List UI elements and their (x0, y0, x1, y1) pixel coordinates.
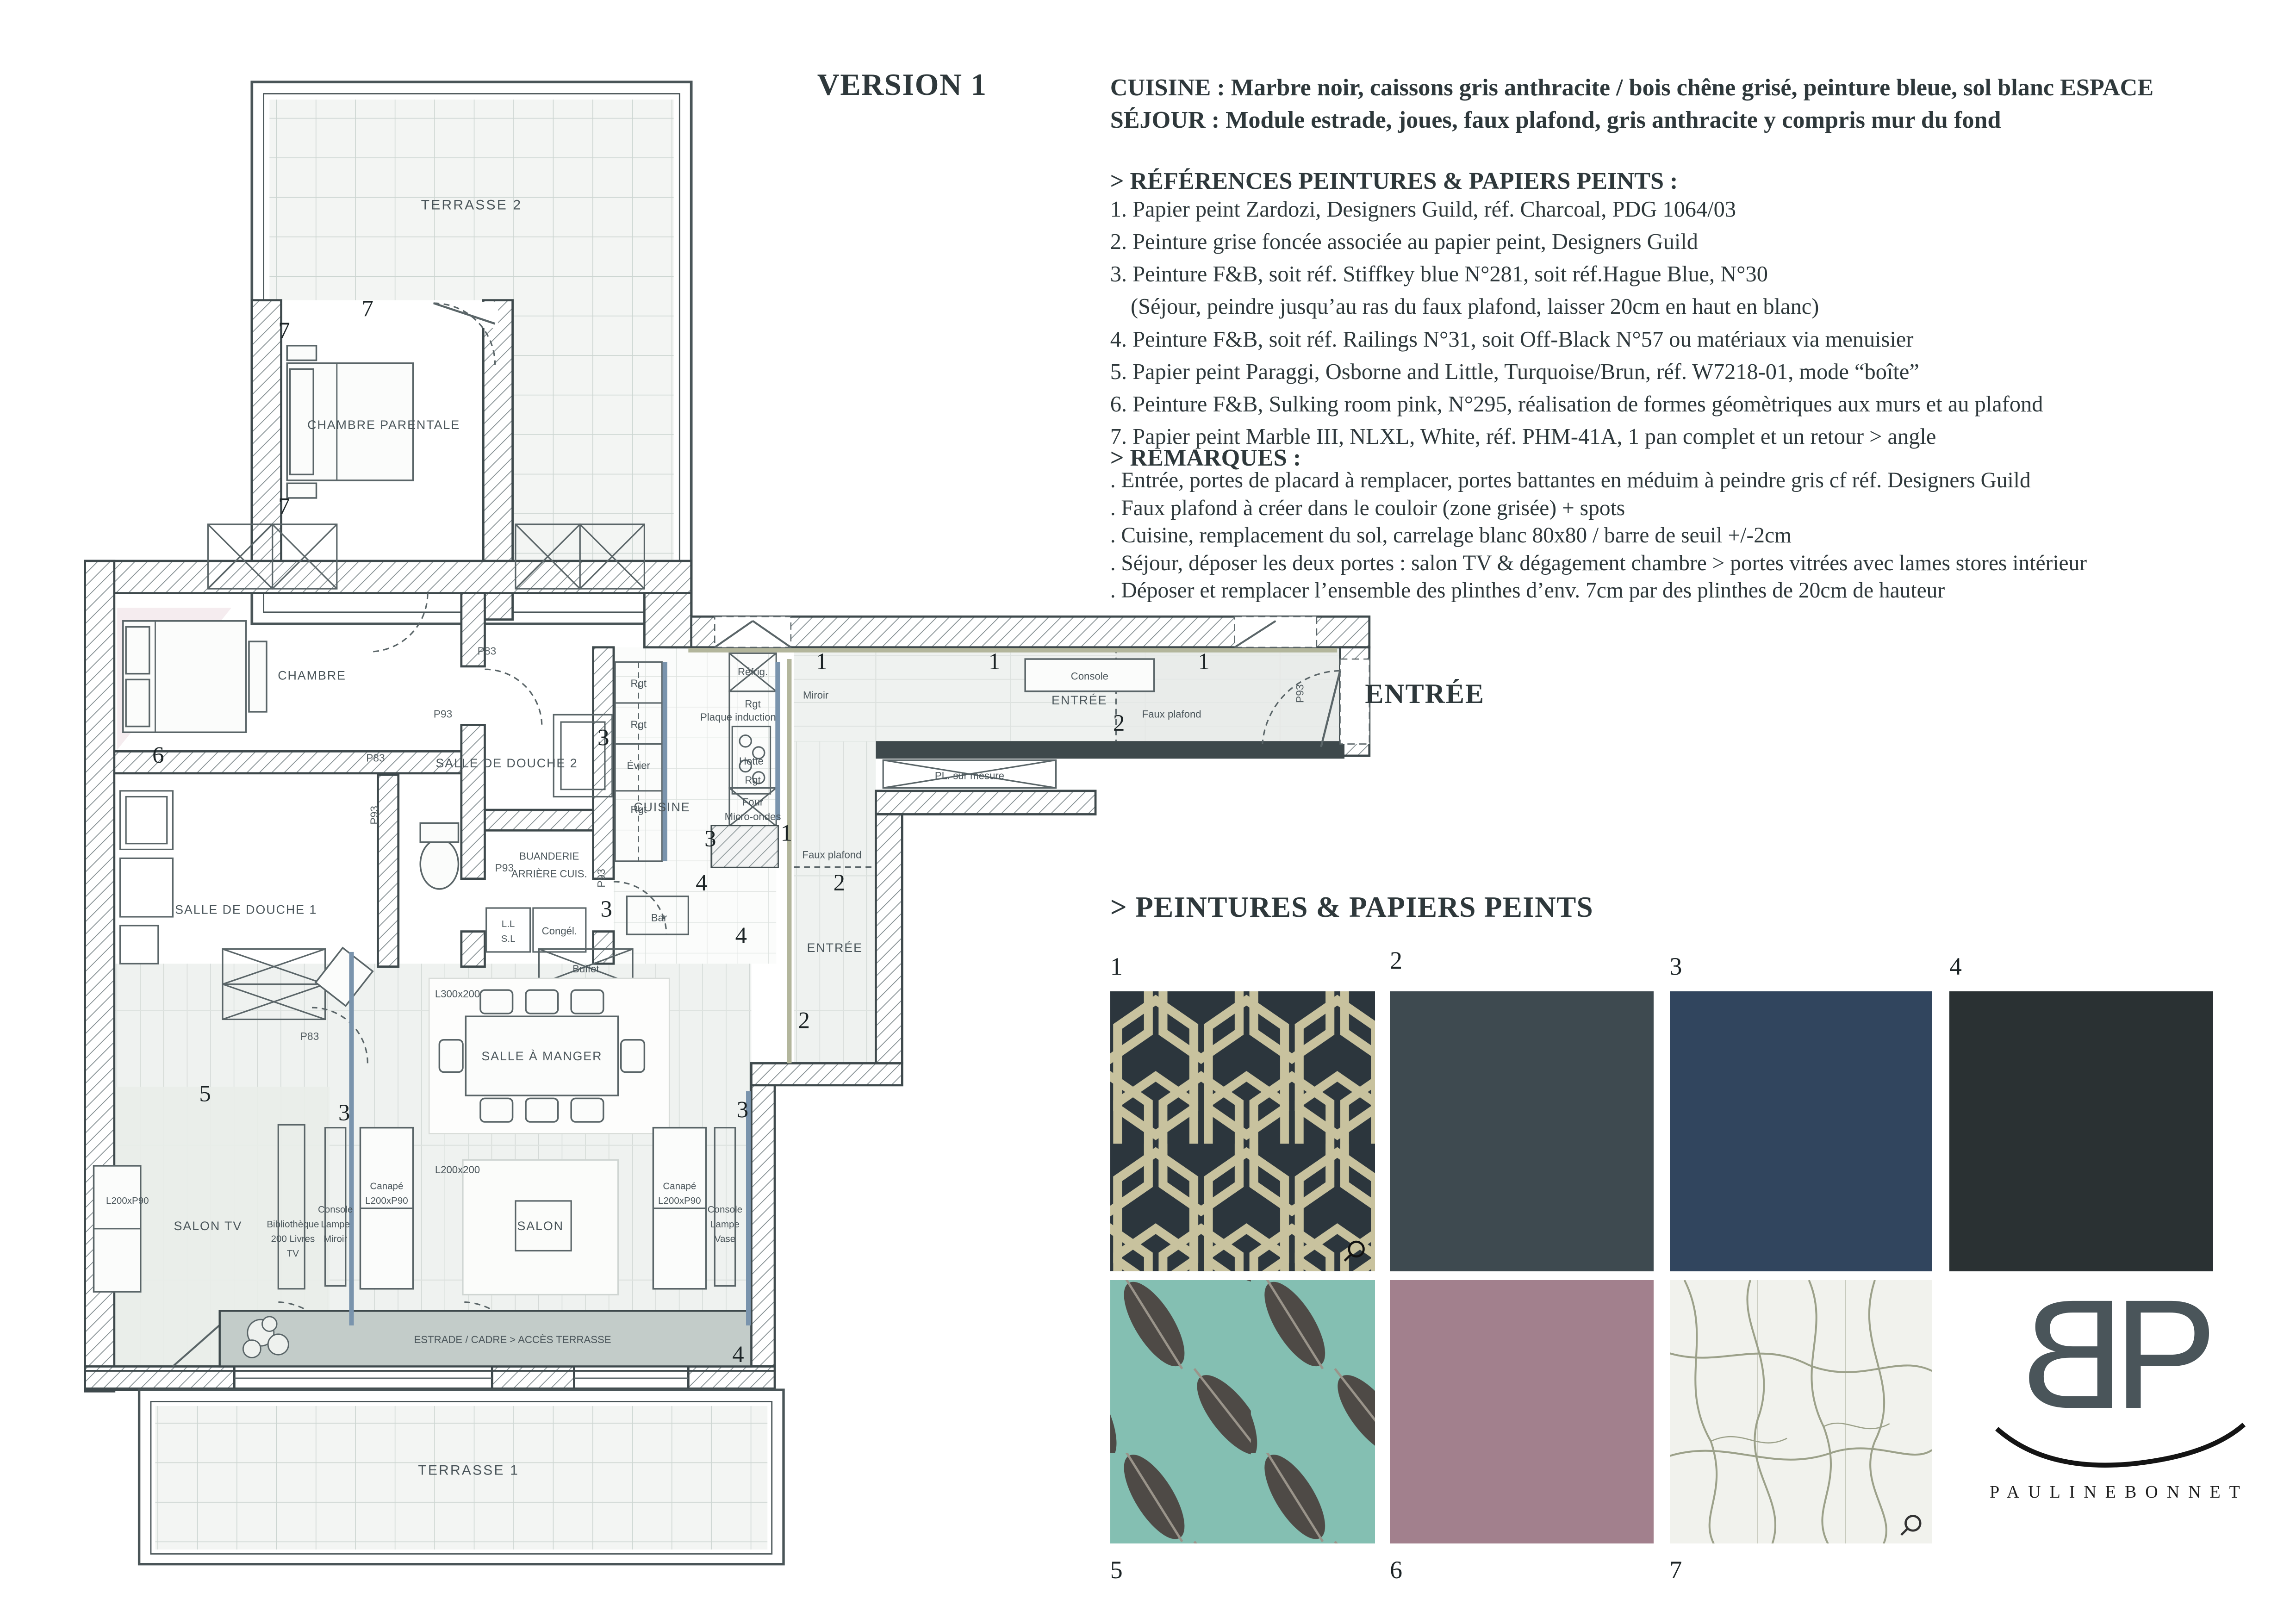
label-buffet: Buffet (572, 963, 599, 975)
label-congel: Congél. (542, 925, 577, 937)
header-line-1: CUISINE : Marbre noir, caissons gris ant… (1110, 72, 2238, 104)
label-l200xp90: L200xP90 (106, 1195, 149, 1206)
label-console-strip-2: Console (708, 1204, 742, 1215)
room-label-chambre-parentale: CHAMBRE PARENTALE (307, 418, 460, 432)
swatch-paint-4 (1949, 991, 2213, 1271)
swatch-paint-6 (1390, 1280, 1654, 1544)
label-plaque-induction: Plaque induction (700, 711, 776, 723)
marker-3: 3 (737, 1097, 748, 1123)
label-miroir-strip: Miroir (324, 1233, 348, 1244)
remarques-list: . Entrée, portes de placard à remplacer,… (1110, 467, 2223, 605)
label-console: Console (1071, 670, 1108, 682)
tag-p93: P93 (368, 806, 380, 825)
bp-monogram-icon: B P (1980, 1286, 2258, 1473)
marker-7: 7 (278, 493, 290, 519)
marker-7: 7 (278, 317, 290, 343)
reference-item: 2. Peinture grise foncée associée au pap… (1110, 226, 2223, 258)
swatch-number-1: 1 (1110, 952, 1123, 981)
reference-item: 4. Peinture F&B, soit réf. Railings N°31… (1110, 324, 2223, 356)
tag-p83: P83 (300, 1030, 319, 1042)
marker-2: 2 (1113, 710, 1125, 736)
reference-item: 5. Papier peint Paraggi, Osborne and Lit… (1110, 356, 2223, 388)
label-l200xp90: L200xP90 (365, 1195, 408, 1206)
swatch-number-7: 7 (1670, 1556, 1682, 1584)
tag-p83: P83 (478, 645, 497, 657)
tag-p93: P93 (495, 862, 514, 874)
marker-4: 4 (732, 1341, 744, 1367)
room-label-terrasse2: TERRASSE 2 (421, 198, 523, 213)
label-vase: Vase (715, 1233, 735, 1244)
reference-item: 3. Peinture F&B, soit réf. Stiffkey blue… (1110, 258, 2223, 291)
swatch-paint-3 (1670, 991, 1932, 1271)
references-title: > RÉFÉRENCES PEINTURES & PAPIERS PEINTS … (1110, 167, 1678, 195)
label-miroir: Miroir (803, 689, 828, 701)
swatch-paraggi (1110, 1280, 1375, 1544)
marker-4: 4 (696, 870, 707, 896)
room-label-sdd2: SALLE DE DOUCHE 2 (436, 756, 578, 770)
logo-name: PAULINEBONNET (1980, 1482, 2258, 1502)
tag-p93: P93 (434, 708, 453, 720)
swatch-number-3: 3 (1670, 952, 1682, 981)
room-label-entree-couloir: ENTRÉE (1052, 693, 1107, 707)
marker-3: 3 (597, 725, 609, 751)
swatch-number-4: 4 (1949, 952, 1962, 981)
label-rgt: Rgt (745, 774, 760, 786)
label-200-livres: 200 Livres (271, 1233, 315, 1244)
label-refrig: Réfrig. (738, 666, 768, 678)
label-l200xp90: L200xP90 (658, 1195, 701, 1206)
brand-logo: B P PAULINEBONNET (1980, 1286, 2258, 1502)
swatch-zardozi (1110, 991, 1375, 1271)
marker-3: 3 (338, 1100, 350, 1126)
label-four: Four (742, 796, 764, 808)
label-rgt: Rgt (630, 719, 646, 730)
header-paragraph: CUISINE : Marbre noir, caissons gris ant… (1110, 72, 2238, 136)
label-rgt: Rgt (745, 698, 760, 709)
room-label-salon: SALON (517, 1219, 564, 1233)
marker-7: 7 (362, 296, 373, 322)
marker-3: 3 (600, 896, 612, 922)
label-estrade: ESTRADE / CADRE > ACCÈS TERRASSE (414, 1334, 611, 1345)
room-label-salle-a-manger: SALLE À MANGER (481, 1049, 602, 1063)
label-rgt: Rgt (630, 678, 646, 689)
marker-2: 2 (834, 870, 845, 896)
label-bar: Bar (651, 912, 667, 923)
room-label-salon-tv: SALON TV (174, 1219, 243, 1233)
remarque-item: . Déposer et remplacer l’ensemble des pl… (1110, 577, 2223, 605)
room-label-buanderie: BUANDERIE (519, 851, 579, 862)
label-console-strip: Console (318, 1204, 353, 1215)
label-canape: Canapé (663, 1181, 696, 1192)
logo-letter-b: B (2021, 1286, 2125, 1441)
marker-1: 1 (989, 648, 1000, 674)
label-pl-sur-mesure: PL. sur mesure (935, 770, 1004, 782)
marker-1: 1 (1198, 648, 1210, 674)
marker-4: 4 (735, 922, 747, 948)
remarque-item: . Entrée, portes de placard à remplacer,… (1110, 467, 2223, 495)
couloir-dark-wall (876, 741, 1344, 759)
label-l300x200: L300x200 (435, 988, 480, 1000)
label-faux-plafond-2: Faux plafond (802, 849, 861, 860)
tag-p93: P93 (1294, 684, 1306, 703)
label-lampe: Lampe (321, 1219, 350, 1230)
swatch-number-5: 5 (1110, 1556, 1123, 1584)
reference-item: 6. Peinture F&B, Sulking room pink, N°29… (1110, 388, 2223, 421)
marker-5: 5 (199, 1081, 211, 1107)
tag-p83: P83 (366, 752, 385, 764)
room-label-arriere-cuis: ARRIÈRE CUIS. (511, 868, 587, 880)
reference-item: 1. Papier peint Zardozi, Designers Guild… (1110, 193, 2223, 226)
label-evier: Évier (627, 759, 650, 771)
label-hotte: Hotte (739, 755, 764, 767)
label-ll: L.L (502, 919, 515, 929)
swatch-number-6: 6 (1390, 1556, 1402, 1584)
marker-2: 2 (798, 1007, 810, 1033)
swatch-paint-2 (1390, 991, 1654, 1271)
marker-6: 6 (152, 742, 164, 768)
label-tv: TV (287, 1248, 299, 1259)
marker-3: 3 (704, 826, 716, 852)
swatch-marble (1670, 1280, 1932, 1544)
marker-1: 1 (781, 820, 792, 846)
remarque-item: . Faux plafond à créer dans le couloir (… (1110, 495, 2223, 523)
room-label-entree-hall: ENTRÉE (807, 941, 863, 955)
remarque-item: . Cuisine, remplacement du sol, carrelag… (1110, 522, 2223, 550)
marker-1: 1 (816, 648, 828, 674)
references-list: 1. Papier peint Zardozi, Designers Guild… (1110, 193, 2223, 454)
room-label-chambre: CHAMBRE (278, 668, 346, 682)
reference-item-note: (Séjour, peindre jusqu’au ras du faux pl… (1110, 291, 2223, 323)
header-line-2: SÉJOUR : Module estrade, joues, faux pla… (1110, 104, 2238, 137)
label-faux-plafond: Faux plafond (1142, 709, 1201, 720)
label-bibliotheque: Bibliothèque (267, 1219, 319, 1230)
logo-letter-p: P (2114, 1286, 2217, 1441)
swatch-number-2: 2 (1390, 946, 1402, 975)
label-micro-ondes: Micro-ondes (725, 811, 781, 822)
label-l200x200: L200x200 (435, 1164, 480, 1176)
remarque-item: . Séjour, déposer les deux portes : salo… (1110, 550, 2223, 578)
entree-label: ENTRÉE (1365, 678, 1485, 710)
label-canape: Canapé (370, 1181, 403, 1192)
tag-p93: P93 (595, 869, 607, 888)
room-label-sdd1: SALLE DE DOUCHE 1 (175, 903, 317, 917)
swatches-title: > PEINTURES & PAPIERS PEINTS (1110, 890, 1593, 924)
label-lampe-2: Lampe (710, 1219, 740, 1230)
label-sl: S.L (501, 933, 516, 944)
label-rgt: Rgt (630, 803, 646, 815)
room-label-terrasse1: TERRASSE 1 (418, 1463, 519, 1478)
page-title: VERSION 1 (817, 68, 987, 103)
